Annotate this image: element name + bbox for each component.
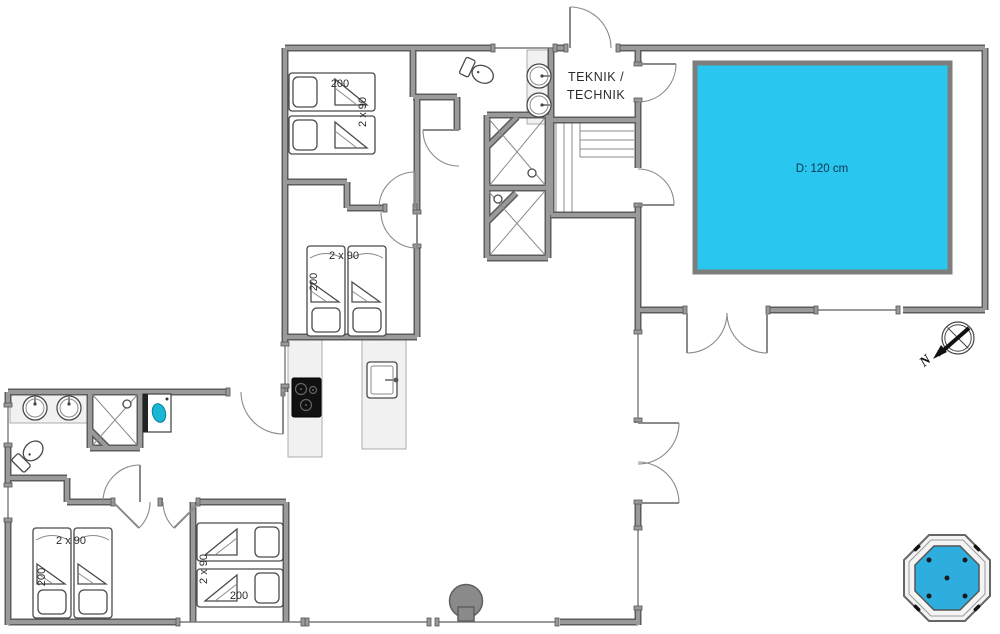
toilet-icon (459, 57, 497, 87)
cooktop-icon (292, 378, 321, 417)
doors (103, 7, 767, 528)
stove-icon (450, 585, 483, 622)
bed-length-label: 200 (331, 78, 349, 90)
bed-length-label: 200 (308, 273, 320, 291)
shower-head-icon (494, 195, 502, 203)
swimming-pool: D: 120 cm (695, 63, 950, 272)
washing-machine-icon (143, 394, 171, 432)
compass-icon: N (916, 322, 974, 371)
teknik-label-line2: TECHNIK (567, 88, 626, 102)
bed-size-label: 2 x 90 (357, 97, 369, 127)
shower-head-icon (123, 400, 131, 408)
sauna-benches-icon (556, 122, 634, 213)
kitchen-sink-icon (367, 362, 398, 398)
floor-plan-page: D: 120 cm (0, 0, 1000, 634)
lower-shower-icon (92, 394, 138, 446)
bed-length-label: 200 (230, 590, 248, 602)
compass-north-label: N (916, 352, 935, 371)
bed-size-label: 2 x 90 (329, 250, 359, 262)
toilet-icon (11, 437, 47, 473)
bed-size-label: 2 x 90 (198, 554, 210, 584)
shower-head-icon (528, 169, 536, 177)
floor-plan: D: 120 cm (0, 0, 1000, 634)
teknik-label-line1: TEKNIK / (568, 70, 624, 84)
hot-tub-icon (904, 535, 990, 621)
pool-depth-label: D: 120 cm (796, 163, 848, 175)
bed-size-label: 2 x 90 (56, 535, 86, 547)
bed-length-label: 200 (36, 568, 48, 586)
